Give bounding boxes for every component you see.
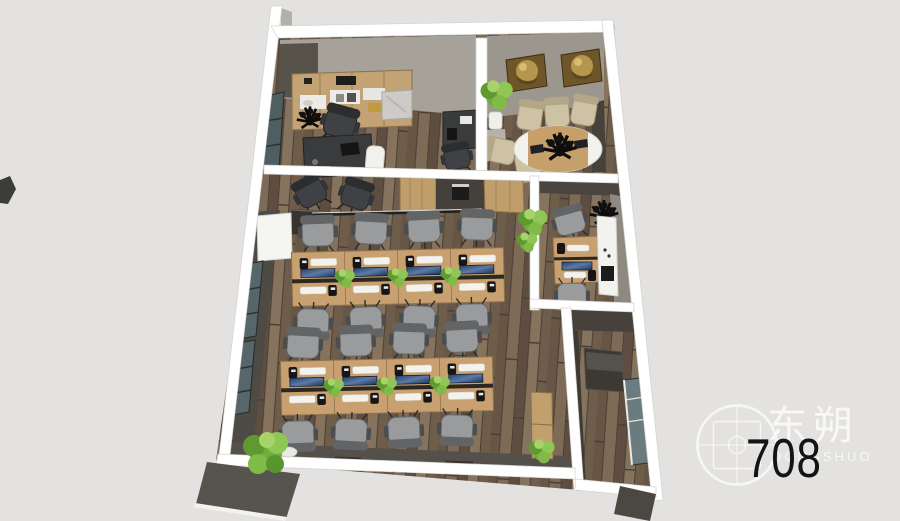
desk-island-2 [280, 357, 493, 416]
floorplan-render: 东朔 DONGSHUO 708 [0, 0, 900, 521]
private-printer [601, 266, 614, 281]
conf-gold-painting-1 [506, 54, 547, 92]
exec-laptop [340, 142, 360, 156]
conf-chair [515, 98, 545, 131]
wall-office-conference-divider [476, 38, 487, 172]
unit-number: 708 [746, 431, 822, 486]
conf-chair [543, 96, 571, 128]
white-cabinet [257, 213, 292, 261]
desk-island-1 [291, 248, 504, 307]
door-executive-office [400, 176, 436, 215]
conf-plant-pot [489, 112, 502, 129]
door-conference-room [484, 176, 524, 213]
conf-gold-painting-2 [561, 49, 602, 87]
